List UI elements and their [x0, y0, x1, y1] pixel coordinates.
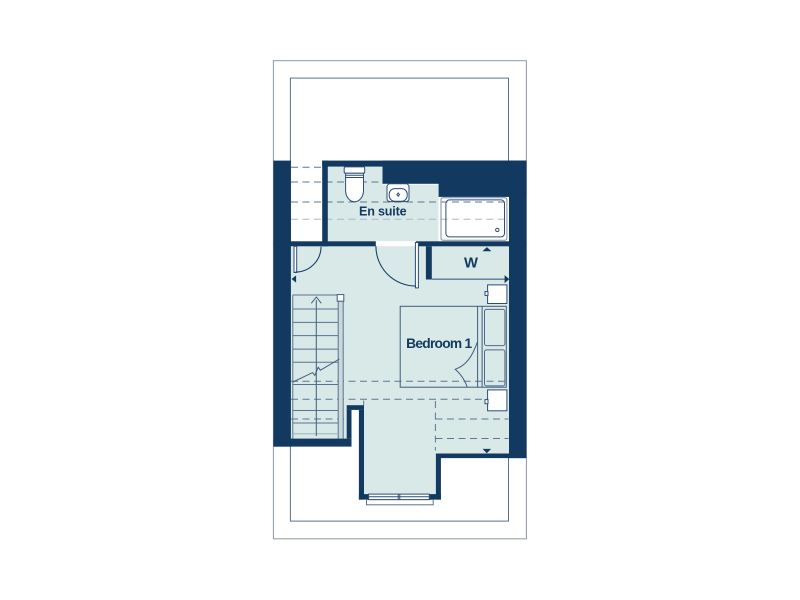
svg-text:En suite: En suite	[359, 205, 407, 219]
svg-text:W: W	[464, 256, 478, 272]
svg-text:Bedroom 1: Bedroom 1	[406, 336, 472, 351]
